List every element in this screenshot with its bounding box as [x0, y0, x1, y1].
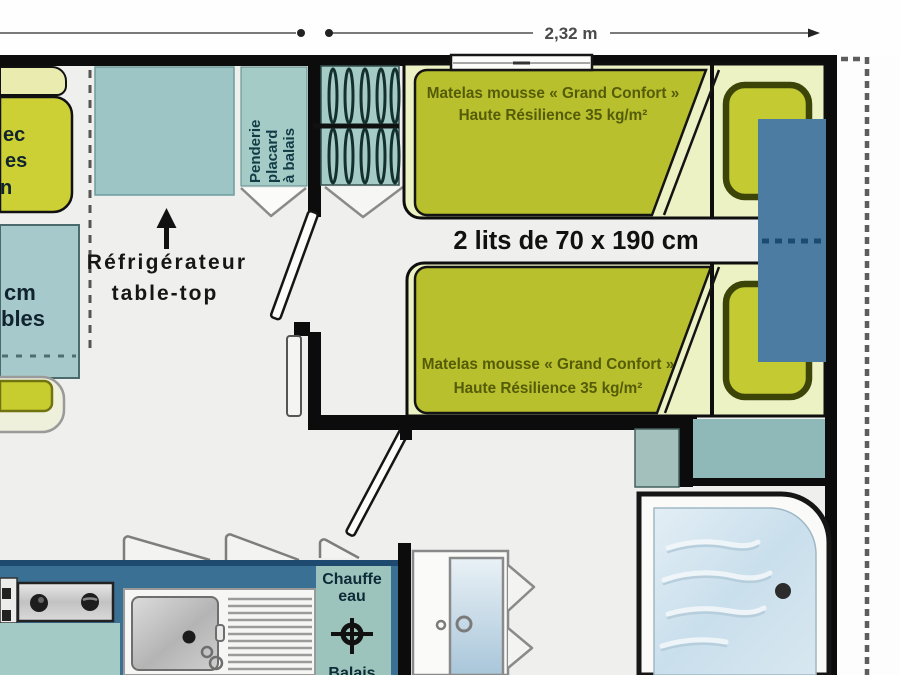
svg-text:2,32 m: 2,32 m	[545, 24, 598, 43]
svg-text:es: es	[5, 150, 27, 172]
svg-text:n: n	[0, 177, 12, 199]
svg-text:Matelas mousse « Grand Confort: Matelas mousse « Grand Confort »	[427, 85, 679, 102]
svg-text:Chauffe: Chauffe	[322, 571, 382, 588]
svg-text:Haute Résilience 35 kg/m²: Haute Résilience 35 kg/m²	[454, 380, 643, 397]
svg-text:Haute Résilience 35 kg/m²: Haute Résilience 35 kg/m²	[459, 107, 648, 124]
svg-text:table-top: table-top	[112, 282, 219, 305]
svg-text:2 lits de 70 x 190 cm: 2 lits de 70 x 190 cm	[453, 227, 698, 255]
svg-text:à balais: à balais	[281, 128, 298, 183]
svg-text:eau: eau	[338, 588, 366, 605]
svg-text:Matelas mousse « Grand Confort: Matelas mousse « Grand Confort »	[422, 356, 674, 373]
svg-text:bles: bles	[1, 306, 45, 331]
svg-text:ec: ec	[3, 124, 25, 146]
svg-text:Balais: Balais	[328, 665, 375, 675]
svg-text:Penderie: Penderie	[247, 120, 264, 183]
svg-text:cm: cm	[4, 280, 36, 305]
svg-text:placard: placard	[264, 130, 281, 183]
svg-text:Réfrigérateur: Réfrigérateur	[87, 251, 247, 274]
